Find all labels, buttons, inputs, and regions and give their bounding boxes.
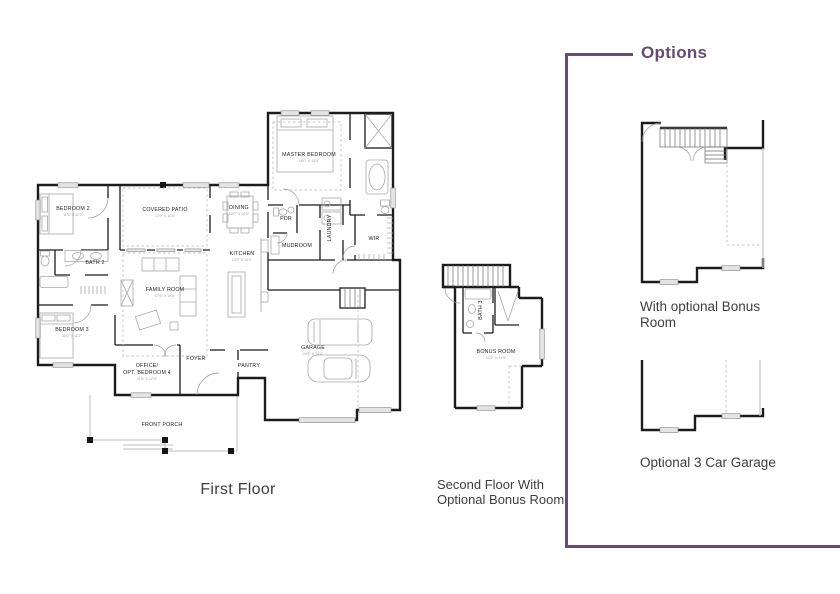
- room-dim-bedroom3: 11'0" X 11'2": [62, 334, 82, 338]
- room-label-mudroom: MUDROOM: [282, 243, 312, 249]
- room-label-bedroom2: BEDROOM 2: [56, 206, 90, 212]
- second-floor-caption-line2: Optional Bonus Room: [437, 492, 564, 507]
- room-label-master-bedroom: MASTER BEDROOM: [282, 152, 336, 158]
- room-label-garage: GARAGE: [301, 345, 325, 351]
- room-label-kitchen: KITCHEN: [230, 251, 255, 257]
- room-dim-office: 11'6" X 12'0": [137, 377, 158, 381]
- room-dim-bedroom2: 11'5" X 11'0": [63, 213, 83, 217]
- second-floor-caption-line1: Second Floor With: [437, 477, 564, 492]
- options-panel-left-border: [565, 53, 568, 547]
- option-bonus-room-plan: [628, 110, 778, 290]
- options-panel-bottom-border: [565, 545, 840, 548]
- room-dim-kitchen: 13'0" X 10'1": [232, 258, 253, 262]
- room-label-family-room: FAMILY ROOM: [146, 287, 185, 293]
- first-floor-plan: BEDROOM 2 11'5" X 11'0" COVERED PATIO 17…: [25, 100, 420, 462]
- room-label-foyer: FOYER: [186, 356, 205, 362]
- floorplan-sheet: BEDROOM 2 11'5" X 11'0" COVERED PATIO 17…: [0, 0, 840, 594]
- room-label-bath3: BATH 3: [478, 300, 484, 319]
- room-label-bedroom3: BEDROOM 3: [55, 327, 89, 333]
- room-label-wir: WIR: [369, 236, 380, 242]
- exterior-walls: [38, 113, 400, 420]
- options-title: Options: [641, 43, 707, 63]
- option-bonus-room-caption-line2: Room: [640, 315, 760, 331]
- option-bonus-room-caption-line1: With optional Bonus: [640, 299, 760, 315]
- room-label-office-line1: OFFICE/: [136, 363, 159, 369]
- second-floor-caption: Second Floor With Optional Bonus Room: [437, 477, 564, 507]
- second-floor-plan: BATH 3 BONUS ROOM 13'9" X 14'9": [432, 253, 550, 415]
- room-dim-covered-patio: 17'9" X 10'0": [155, 214, 176, 218]
- room-label-office-line2: OPT. BEDROOM 4: [123, 370, 171, 376]
- room-label-dining: DINING: [229, 205, 249, 211]
- room-dim-family-room: 17'5" X 19'8": [155, 294, 176, 298]
- room-dim-bonus-room: 13'9" X 14'9": [486, 356, 507, 360]
- room-label-covered-patio: COVERED PATIO: [142, 207, 187, 213]
- interior-walls: [38, 113, 400, 395]
- option2-walls: [642, 360, 763, 433]
- room-label-bonus-room: BONUS ROOM: [477, 349, 516, 355]
- room-label-pantry: PANTRY: [238, 363, 260, 369]
- options-panel-top-border: [565, 53, 633, 56]
- option-3-car-garage-plan: [632, 355, 782, 445]
- option-bonus-room-caption: With optional Bonus Room: [640, 299, 760, 331]
- room-label-laundry: LAUNDRY: [327, 214, 333, 241]
- room-label-pdr: PDR: [280, 216, 292, 222]
- room-label-bath2: BATH 2: [85, 260, 104, 266]
- first-floor-caption: First Floor: [153, 481, 323, 499]
- windows: [36, 111, 396, 423]
- room-dim-master-bedroom: 16'0" X 14'4": [299, 159, 320, 163]
- room-label-front-porch: FRONT PORCH: [142, 422, 183, 428]
- second-floor-room-labels: BATH 3 BONUS ROOM 13'9" X 14'9": [477, 300, 516, 360]
- room-dim-dining: 10'0" X 12'0": [229, 212, 250, 216]
- room-dim-garage: 24'6" X 24'4": [303, 352, 324, 356]
- option-3-car-garage-caption: Optional 3 Car Garage: [640, 455, 776, 470]
